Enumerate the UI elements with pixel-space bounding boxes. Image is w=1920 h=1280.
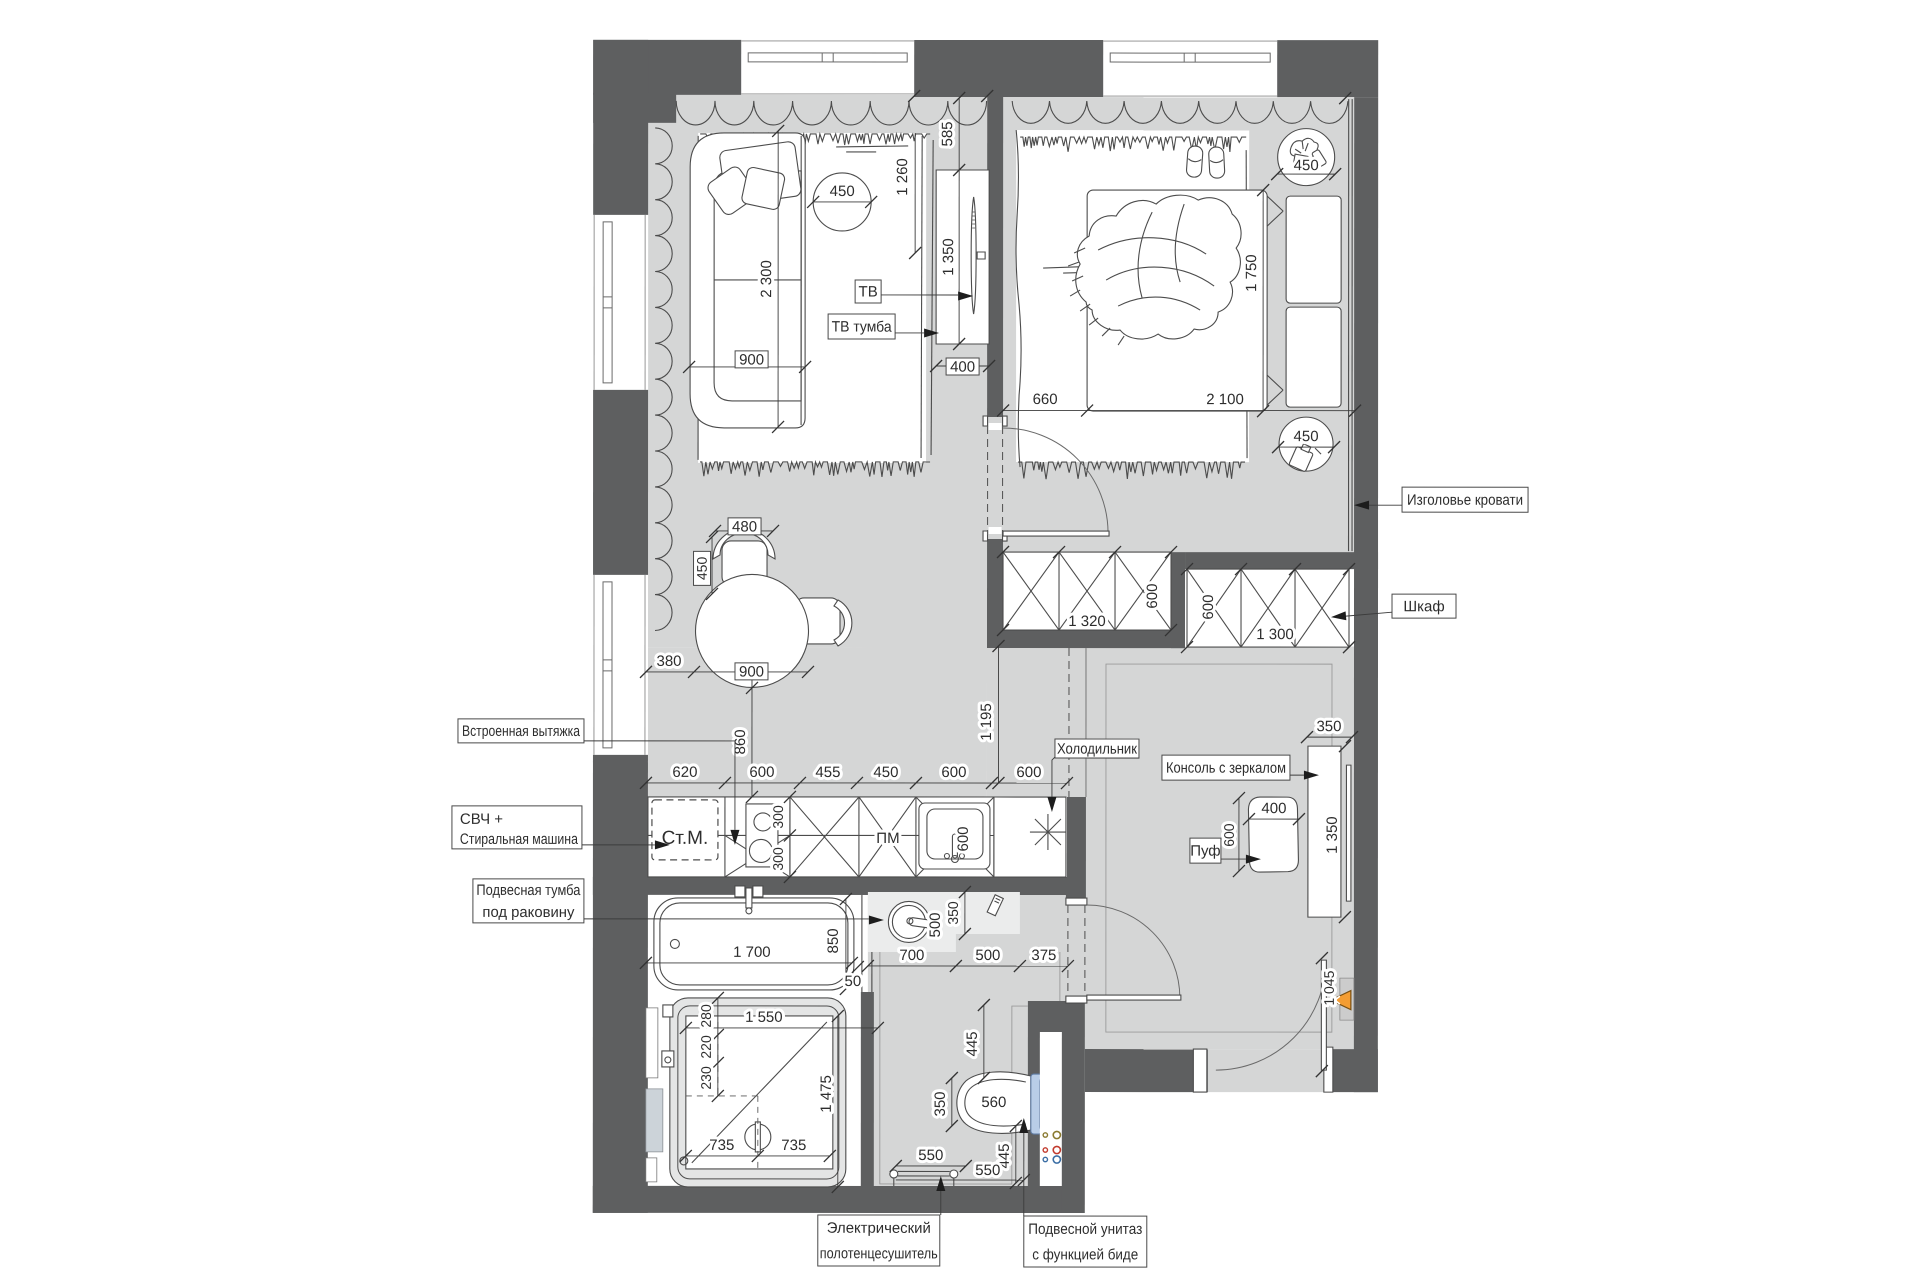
svg-text:500: 500 xyxy=(975,947,1000,964)
svg-text:ТВ: ТВ xyxy=(859,284,878,301)
svg-text:50: 50 xyxy=(845,973,862,990)
svg-text:700: 700 xyxy=(899,947,924,964)
svg-text:1 320: 1 320 xyxy=(1068,613,1106,630)
svg-text:550: 550 xyxy=(918,1147,943,1164)
svg-text:400: 400 xyxy=(1261,800,1286,817)
svg-text:1 260: 1 260 xyxy=(894,158,911,196)
svg-text:380: 380 xyxy=(656,653,681,670)
svg-text:Ст.М.: Ст.М. xyxy=(662,828,709,849)
svg-text:560: 560 xyxy=(981,1094,1006,1111)
svg-text:585: 585 xyxy=(939,121,956,146)
svg-text:900: 900 xyxy=(739,352,764,369)
svg-text:350: 350 xyxy=(932,1091,949,1116)
svg-text:660: 660 xyxy=(1033,391,1058,408)
svg-text:300: 300 xyxy=(770,847,786,871)
svg-text:230: 230 xyxy=(698,1066,714,1090)
svg-text:900: 900 xyxy=(739,664,764,681)
svg-text:550: 550 xyxy=(975,1162,1000,1179)
svg-text:Консоль с зеркалом: Консоль с зеркалом xyxy=(1166,760,1286,777)
svg-text:Изголовье кровати: Изголовье кровати xyxy=(1407,492,1523,509)
svg-text:600: 600 xyxy=(941,764,966,781)
svg-text:445: 445 xyxy=(964,1031,981,1056)
svg-text:450: 450 xyxy=(694,557,710,581)
svg-text:220: 220 xyxy=(698,1035,714,1059)
svg-text:Стиральная машина: Стиральная машина xyxy=(460,831,579,848)
svg-text:375: 375 xyxy=(1031,947,1056,964)
svg-text:Шкаф: Шкаф xyxy=(1403,598,1444,615)
svg-text:600: 600 xyxy=(749,764,774,781)
svg-text:450: 450 xyxy=(1294,428,1319,445)
svg-text:450: 450 xyxy=(830,183,855,200)
svg-text:СВЧ +: СВЧ + xyxy=(460,811,503,828)
svg-text:полотенцесушитель: полотенцесушитель xyxy=(820,1245,938,1262)
svg-text:1 750: 1 750 xyxy=(1243,254,1260,292)
svg-text:с функцией биде: с функцией биде xyxy=(1032,1246,1138,1263)
svg-text:600: 600 xyxy=(1016,764,1041,781)
svg-text:600: 600 xyxy=(955,826,972,851)
svg-text:600: 600 xyxy=(1221,823,1237,847)
svg-text:1 550: 1 550 xyxy=(745,1009,783,1026)
svg-text:Подвесной унитаз: Подвесной унитаз xyxy=(1028,1221,1142,1238)
svg-text:450: 450 xyxy=(1294,157,1319,174)
svg-text:1 700: 1 700 xyxy=(733,944,771,961)
svg-text:400: 400 xyxy=(950,359,975,376)
svg-text:735: 735 xyxy=(781,1137,806,1154)
svg-text:480: 480 xyxy=(732,519,757,536)
svg-text:под раковину: под раковину xyxy=(482,904,574,921)
svg-text:Встроенная вытяжка: Встроенная вытяжка xyxy=(462,723,581,740)
svg-text:455: 455 xyxy=(815,764,840,781)
svg-text:620: 620 xyxy=(672,764,697,781)
svg-text:1 195: 1 195 xyxy=(978,703,995,741)
svg-text:Пуф: Пуф xyxy=(1190,843,1220,860)
svg-text:450: 450 xyxy=(873,764,898,781)
svg-text:350: 350 xyxy=(1316,718,1341,735)
svg-text:1 350: 1 350 xyxy=(1324,816,1341,854)
svg-text:Электрический: Электрический xyxy=(827,1220,931,1237)
svg-text:350: 350 xyxy=(945,901,961,925)
svg-text:735: 735 xyxy=(709,1137,734,1154)
svg-text:1 300: 1 300 xyxy=(1256,626,1294,643)
svg-text:ТВ тумба: ТВ тумба xyxy=(832,319,893,336)
svg-text:300: 300 xyxy=(770,805,786,829)
svg-text:Холодильник: Холодильник xyxy=(1057,741,1137,758)
svg-text:2 100: 2 100 xyxy=(1206,391,1244,408)
svg-text:1 045: 1 045 xyxy=(1321,970,1337,1005)
svg-text:850: 850 xyxy=(825,928,842,953)
svg-text:600: 600 xyxy=(1144,584,1161,609)
svg-text:600: 600 xyxy=(1200,595,1217,620)
svg-text:2 300: 2 300 xyxy=(758,260,775,298)
svg-text:Подвесная тумба: Подвесная тумба xyxy=(476,882,581,899)
svg-text:ПМ: ПМ xyxy=(876,830,899,847)
svg-text:1 475: 1 475 xyxy=(818,1075,835,1113)
svg-text:280: 280 xyxy=(698,1004,714,1028)
svg-text:500: 500 xyxy=(927,912,944,937)
svg-text:1 350: 1 350 xyxy=(940,238,957,276)
